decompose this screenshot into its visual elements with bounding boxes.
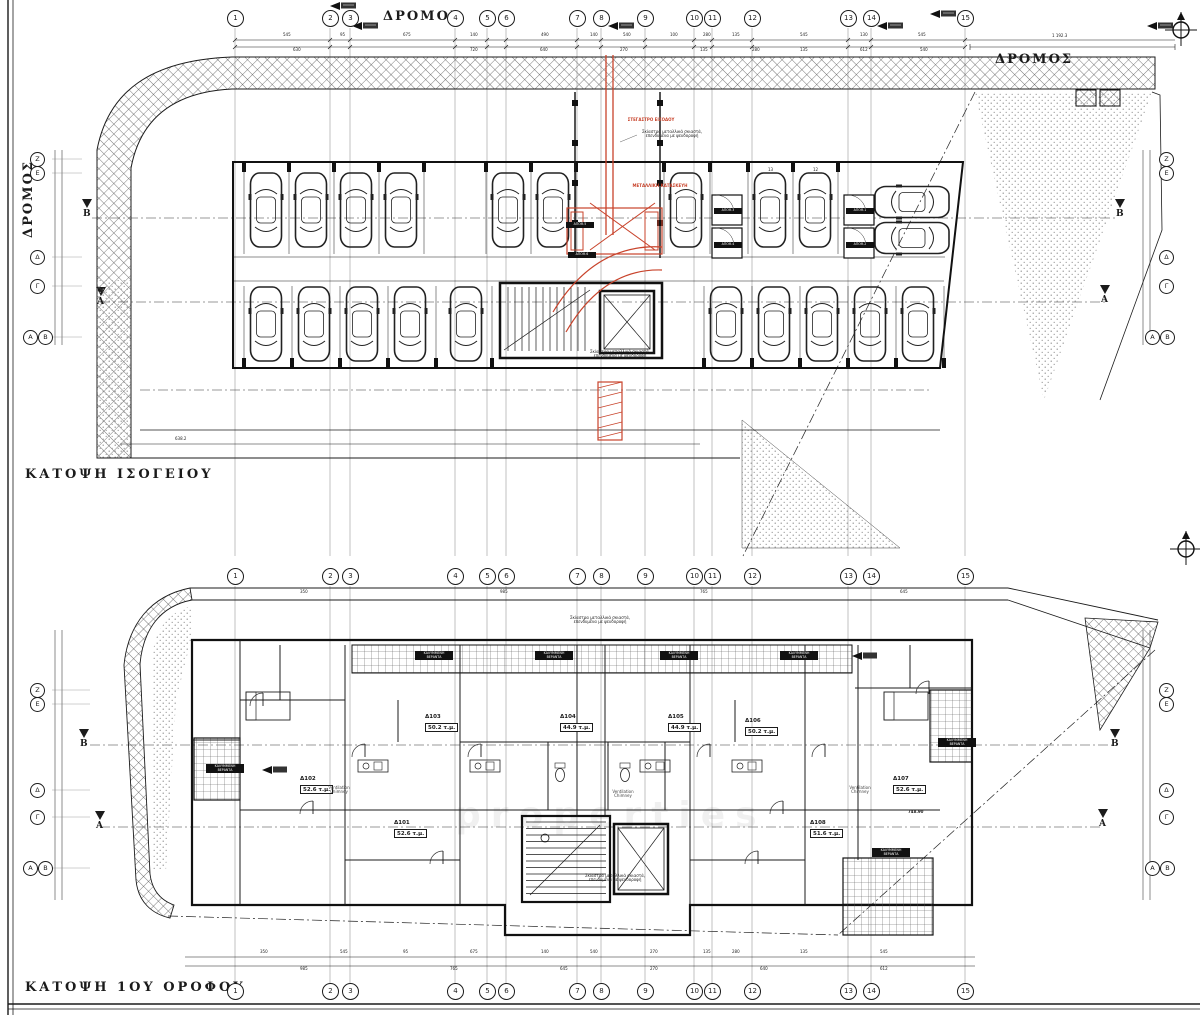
dim-value: 765 — [700, 590, 708, 594]
grid-letter-bubble: Ε — [1159, 166, 1174, 181]
grid-bubble: 3 — [342, 983, 359, 1000]
grid-bubble: 12 — [744, 568, 761, 585]
dim-value: 540 — [623, 33, 631, 37]
dim-value: 545 — [918, 33, 926, 37]
dim-value: 640 — [760, 967, 768, 971]
grid-bubble: 14 — [863, 568, 880, 585]
grid-bubble: 13 — [840, 568, 857, 585]
grid-letter-bubble: Δ — [30, 250, 45, 265]
apartment-id: Δ105 — [668, 714, 684, 720]
dim-value: 545 — [340, 950, 348, 954]
apartment-id: Δ104 — [560, 714, 576, 720]
dim-value: 280 — [732, 950, 740, 954]
dim-value: 140 — [541, 950, 549, 954]
grid-letter-bubble: Ε — [30, 697, 45, 712]
dim-value: 640 — [540, 48, 548, 52]
grid-letter-bubble: Ζ — [1159, 683, 1174, 698]
grid-bubble: 12 — [744, 10, 761, 27]
dim-value: 720 — [470, 48, 478, 52]
first-floor-title: ΚΑΤΟΨΗ 1ΟΥ ΟΡΟΦΟΥ — [25, 981, 246, 995]
dim-value: 95 — [403, 950, 408, 954]
grid-bubble: 3 — [342, 10, 359, 27]
grid-letter-bubble: Α — [23, 330, 38, 345]
dim-value: 270 — [650, 950, 658, 954]
covered-veranda-label: ΚΑΛΥΜΜΕΝΗΒΕΡΑΝΤΑ — [206, 764, 244, 773]
dim-value: 490 — [541, 33, 549, 37]
dim-value: 545 — [283, 33, 291, 37]
dim-value: 135 — [700, 48, 708, 52]
grid-bubble: 11 — [704, 983, 721, 1000]
ground-floor-title: ΚΑΤΟΨΗ ΙΣΟΓΕΙΟΥ — [25, 468, 213, 482]
grid-bubble: 4 — [447, 568, 464, 585]
grid-letter-bubble: Γ — [30, 279, 45, 294]
dim-value: 130 — [860, 33, 868, 37]
dim-value: 350 — [300, 590, 308, 594]
site-width-dim: 1 192.3 — [1052, 34, 1067, 38]
dim-value: 985 — [300, 967, 308, 971]
dim-value: 135 — [800, 48, 808, 52]
grid-bubble: 11 — [704, 10, 721, 27]
grid-bubble: 2 — [322, 10, 339, 27]
covered-veranda-label: ΚΑΛΥΜΜΕΝΗΒΕΡΑΝΤΑ — [535, 651, 573, 660]
apartment-id: Δ102 — [300, 776, 316, 782]
grid-bubble: 1 — [227, 10, 244, 27]
section-marker: Β — [83, 210, 91, 220]
grid-bubble: 7 — [569, 568, 586, 585]
ventilation-note: Ventilation Chimney — [849, 786, 871, 795]
grid-bubble: 1 — [227, 568, 244, 585]
grid-bubble: 11 — [704, 568, 721, 585]
dim-value: 985 — [500, 590, 508, 594]
dim-value: 645 — [560, 967, 568, 971]
grid-letter-bubble: Α — [1145, 861, 1160, 876]
grid-bubble: 10 — [686, 983, 703, 1000]
apartment-area: 50.2 τ.μ. — [425, 723, 458, 732]
apartment-id: Δ103 — [425, 714, 441, 720]
grid-bubble: 6 — [498, 568, 515, 585]
grid-letter-bubble: Β — [1160, 861, 1175, 876]
apartment-id: Δ106 — [745, 718, 761, 724]
grid-bubble: 8 — [593, 10, 610, 27]
dim-value: 545 — [880, 950, 888, 954]
apartment-id: Δ107 — [893, 776, 909, 782]
grid-bubble: 15 — [957, 983, 974, 1000]
grid-bubble: 13 — [840, 983, 857, 1000]
grid-letter-bubble: Α — [23, 861, 38, 876]
grid-letter-bubble: Ε — [30, 166, 45, 181]
grid-letter-bubble: Γ — [1159, 810, 1174, 825]
grid-bubble: 2 — [322, 983, 339, 1000]
watermark: properties — [455, 795, 767, 836]
grid-letter-bubble: Γ — [30, 810, 45, 825]
grid-letter-bubble: Ζ — [30, 683, 45, 698]
storage-label: ΑΠΟΘ.2 — [846, 242, 874, 248]
grid-letter-bubble: Β — [38, 861, 53, 876]
dim-value: 612 — [880, 967, 888, 971]
grid-letter-bubble: Β — [38, 330, 53, 345]
dim-value: 350 — [260, 950, 268, 954]
section-marker: Β — [1111, 740, 1119, 750]
stall-number: 13 — [768, 168, 773, 172]
dim-value: 95 — [340, 33, 345, 37]
covered-veranda-label: ΚΑΛΥΜΜΕΝΗΒΕΡΑΝΤΑ — [780, 651, 818, 660]
covered-veranda-label: ΚΑΛΥΜΜΕΝΗΒΕΡΑΝΤΑ — [938, 738, 976, 747]
dim-value: 675 — [403, 33, 411, 37]
storage-label: ΑΠΟΘ.1 — [846, 208, 874, 214]
grid-letter-bubble: Δ — [1159, 250, 1174, 265]
grid-bubble: 13 — [840, 10, 857, 27]
dim-value: 540 — [590, 950, 598, 954]
dim-value: 630 — [293, 48, 301, 52]
apartment-area: 51.6 τ.μ. — [810, 829, 843, 838]
grid-letter-bubble: Δ — [1159, 783, 1174, 798]
grid-bubble: 12 — [744, 983, 761, 1000]
ventilation-note: Ventilation Chimney — [328, 786, 350, 795]
grid-bubble: 1 — [227, 983, 244, 1000]
red-annotation: ΜΕΤΑΛΛΙΚΗ ΚΑΤΑΣΚΕΥΗ — [628, 184, 692, 188]
grid-bubble: 8 — [593, 983, 610, 1000]
plan-width-dim: 638.2 — [175, 437, 186, 441]
apartment-id: Δ108 — [810, 820, 826, 826]
elevation-label: 748.90 — [908, 810, 923, 814]
grid-letter-bubble: Α — [1145, 330, 1160, 345]
apartment-area: 52.6 τ.μ. — [893, 785, 926, 794]
storage-label: ΑΠΟΘ.3 — [714, 208, 742, 214]
grid-bubble: 4 — [447, 983, 464, 1000]
grid-bubble: 5 — [479, 10, 496, 27]
dim-value: 645 — [900, 590, 908, 594]
pergola-note: Σκίαστρα μεταλλικά σκιαστά, επενδυμένα μ… — [560, 616, 640, 625]
section-marker: Α — [1099, 820, 1106, 830]
grid-letter-bubble: Γ — [1159, 279, 1174, 294]
dim-value: 100 — [670, 33, 678, 37]
section-marker: Α — [96, 822, 103, 832]
section-marker: Β — [80, 740, 88, 750]
pergola-note: Σκίαστρα μεταλλικά σκιαστά, επενδυμένα μ… — [585, 350, 655, 359]
grid-letter-bubble: Ζ — [30, 152, 45, 167]
covered-veranda-label: ΚΑΛΥΜΜΕΝΗΒΕΡΑΝΤΑ — [660, 651, 698, 660]
grid-letter-bubble: Ζ — [1159, 152, 1174, 167]
drawing-sheet: ΚΑΤΟΨΗ ΙΣΟΓΕΙΟΥ ΚΑΤΟΨΗ 1ΟΥ ΟΡΟΦΟΥ ΔΡΟΜΟΣ… — [0, 0, 1200, 1015]
covered-veranda-label: ΚΑΛΥΜΜΕΝΗΒΕΡΑΝΤΑ — [415, 651, 453, 660]
grid-bubble: 9 — [637, 983, 654, 1000]
dim-value: 135 — [703, 950, 711, 954]
red-annotation: ΣΤΕΓΑΣΤΡΟ ΕΙΣΟΔΟΥ — [622, 118, 680, 122]
grid-bubble: 6 — [498, 10, 515, 27]
grid-letter-bubble: Β — [1160, 330, 1175, 345]
storage-label: ΑΠΟΘ.4 — [714, 242, 742, 248]
grid-bubble: 10 — [686, 10, 703, 27]
apartment-area: 50.2 τ.μ. — [745, 727, 778, 736]
dim-value: 675 — [470, 950, 478, 954]
section-marker: Β — [1116, 210, 1124, 220]
road-label-top-right: ΔΡΟΜΟΣ — [995, 53, 1073, 67]
grid-letter-bubble: Ε — [1159, 697, 1174, 712]
storage-label: ΑΠΟΘ.5 — [566, 222, 594, 228]
covered-veranda-label: ΚΑΛΥΜΜΕΝΗΒΕΡΑΝΤΑ — [872, 848, 910, 857]
grid-bubble: 10 — [686, 568, 703, 585]
pergola-note: Σκίαστρα μεταλλικά σκιαστά, επενδυμένα μ… — [580, 874, 650, 883]
grid-bubble: 7 — [569, 983, 586, 1000]
dim-value: 765 — [450, 967, 458, 971]
grid-bubble: 8 — [593, 568, 610, 585]
grid-bubble: 15 — [957, 568, 974, 585]
grid-bubble: 9 — [637, 568, 654, 585]
apartment-area: 52.6 τ.μ. — [394, 829, 427, 838]
ventilation-note: Ventilation Chimney — [612, 790, 634, 799]
dim-value: 140 — [590, 33, 598, 37]
stall-number: 12 — [813, 168, 818, 172]
grid-bubble: 14 — [863, 983, 880, 1000]
grid-bubble: 15 — [957, 10, 974, 27]
apartment-area: 44.9 τ.μ. — [560, 723, 593, 732]
grid-bubble: 5 — [479, 568, 496, 585]
grid-bubble: 2 — [322, 568, 339, 585]
dim-value: 270 — [620, 48, 628, 52]
dim-value: 135 — [732, 33, 740, 37]
dim-value: 135 — [800, 950, 808, 954]
apartment-area: 44.9 τ.μ. — [668, 723, 701, 732]
grid-bubble: 3 — [342, 568, 359, 585]
grid-bubble: 6 — [498, 983, 515, 1000]
apartment-id: Δ101 — [394, 820, 410, 826]
section-marker: Α — [1101, 296, 1108, 306]
grid-bubble: 7 — [569, 10, 586, 27]
dim-value: 612 — [860, 48, 868, 52]
grid-bubble: 4 — [447, 10, 464, 27]
grid-bubble: 9 — [637, 10, 654, 27]
dim-value: 270 — [650, 967, 658, 971]
section-marker: Α — [97, 298, 104, 308]
dim-value: 280 — [752, 48, 760, 52]
dim-value: 140 — [470, 33, 478, 37]
pergola-note: Σκίαστρα μεταλλικά σκιαστά, επενδυμένα μ… — [640, 130, 704, 139]
grid-letter-bubble: Δ — [30, 783, 45, 798]
dim-value: 280 — [703, 33, 711, 37]
storage-label: ΑΠΟΘ.6 — [568, 252, 596, 258]
dim-value: 540 — [920, 48, 928, 52]
floor-plan-linework — [0, 0, 1200, 1015]
grid-bubble: 14 — [863, 10, 880, 27]
grid-bubble: 5 — [479, 983, 496, 1000]
dim-value: 545 — [800, 33, 808, 37]
